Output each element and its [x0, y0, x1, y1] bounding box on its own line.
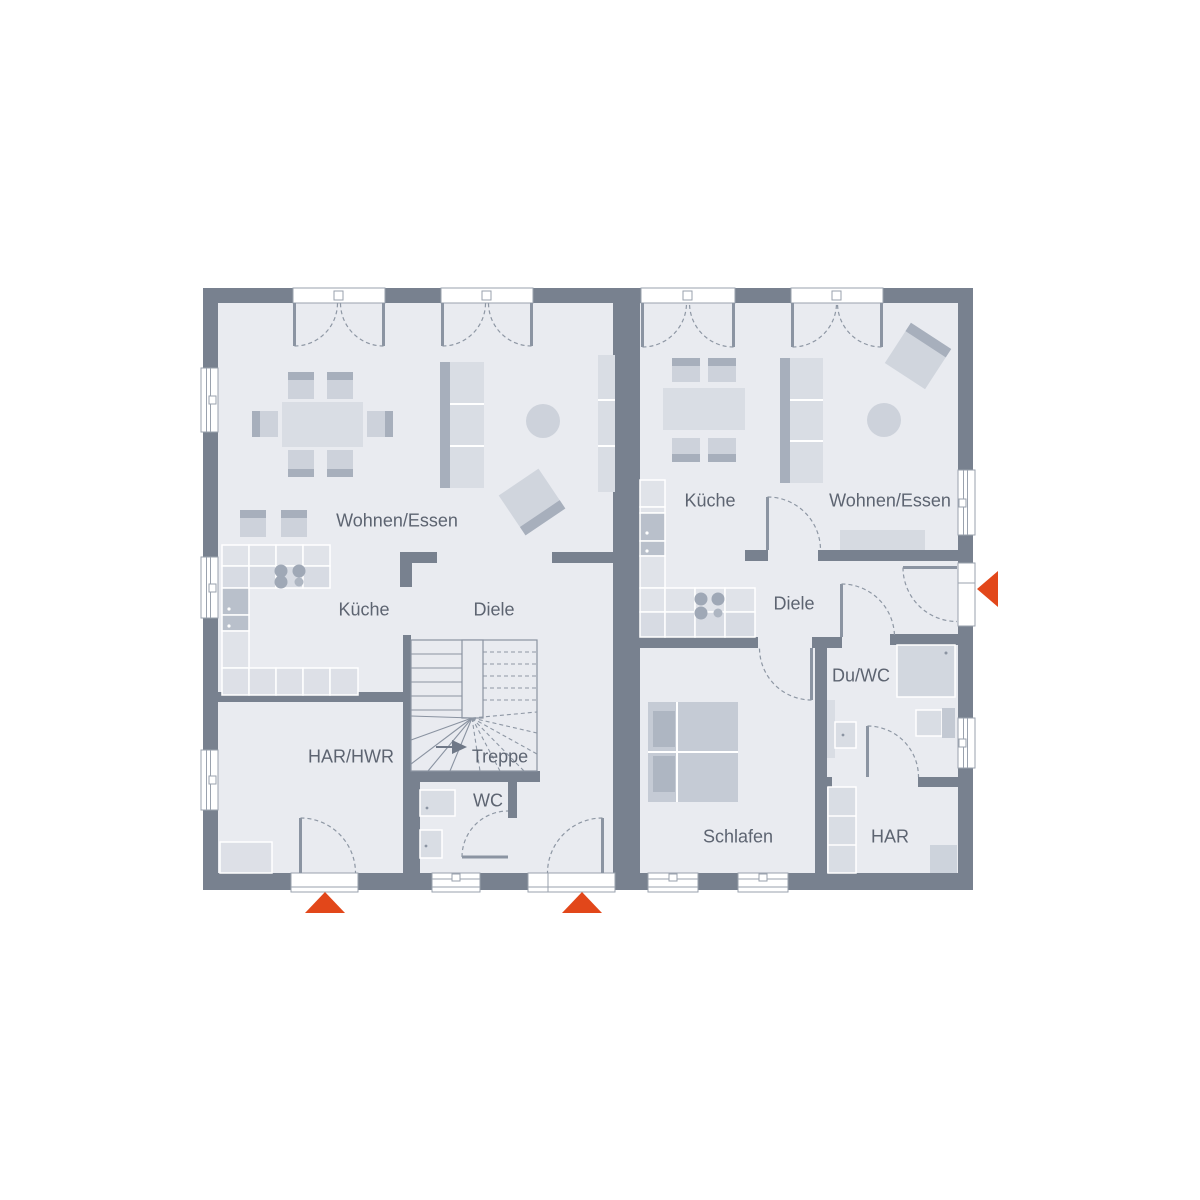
- room-label-kitchen-left: Küche: [338, 600, 389, 621]
- coffee-table: [526, 404, 560, 438]
- room-label-bedroom-right: Schlafen: [703, 827, 773, 848]
- room-label-kitchen-right: Küche: [684, 491, 735, 512]
- sofa: [780, 358, 823, 483]
- washbasin: [835, 722, 856, 748]
- shelf-cabinet: [598, 355, 615, 492]
- room-label-bath-right: Du/WC: [832, 666, 890, 687]
- room-label-living-left: Wohnen/Essen: [336, 511, 458, 532]
- dining-table: [282, 402, 363, 447]
- double-bed: [648, 702, 738, 802]
- sideboard: [840, 530, 925, 550]
- utility-cabinet: [220, 842, 272, 873]
- entrance-arrow-icon: [562, 892, 602, 913]
- room-label-stairs-left: Treppe: [472, 747, 528, 768]
- floor-plan-drawing: [0, 0, 1200, 1200]
- room-label-utility-left: HAR/HWR: [308, 747, 394, 768]
- coffee-table: [867, 403, 901, 437]
- sofa: [440, 362, 484, 488]
- entrance-arrow-icon: [977, 571, 998, 607]
- room-label-storage-right: HAR: [871, 827, 909, 848]
- dining-table: [663, 388, 745, 430]
- toilet: [916, 710, 942, 736]
- entrance-arrow-icon: [305, 892, 345, 913]
- room-label-living-right: Wohnen/Essen: [829, 491, 951, 512]
- floor-plan-page: Wohnen/Essen Küche Diele HAR/HWR Treppe …: [0, 0, 1200, 1200]
- room-label-hall-right: Diele: [773, 594, 814, 615]
- room-label-wc-left: WC: [473, 791, 503, 812]
- building-shell: [203, 288, 973, 890]
- room-label-hall-left: Diele: [473, 600, 514, 621]
